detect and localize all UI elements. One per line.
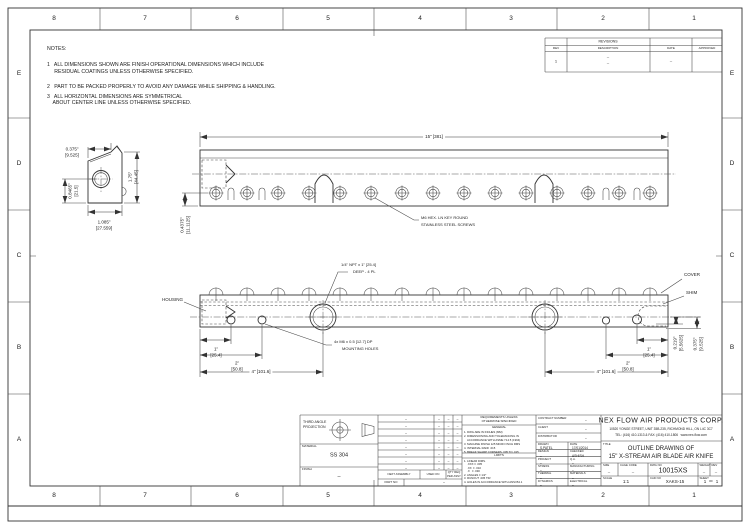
parts-cell-dash: – — [448, 416, 450, 420]
parts-cell-dash: – — [405, 423, 407, 427]
zone-row-label: A — [17, 436, 21, 444]
distributor-value: – — [585, 436, 587, 440]
zone-row-label: E — [17, 70, 21, 78]
sheet-value: 1 — [704, 479, 707, 485]
size-label: SIZE — [603, 464, 609, 468]
zone-row-label: B — [17, 344, 21, 352]
revisions-col-description: DESCRIPTION — [598, 47, 619, 51]
note-line: 2 PART TO BE PACKED PROPERLY TO AVOID AN… — [47, 84, 276, 91]
zone-row-label: B — [730, 344, 734, 352]
weight-value: – — [703, 469, 705, 474]
parts-cell-dash: – — [405, 465, 407, 469]
dim-side-left: 0.8465"[21.5] — [55, 183, 84, 198]
zone-col-label: 5 — [326, 492, 330, 500]
parts-cell-dash: – — [438, 416, 440, 420]
general-item: 5. BREAK SHARP CORNERS .005 TO .015 — [464, 451, 519, 455]
part-no-label: PART NO — [384, 481, 397, 485]
screw-note: M6 HEX. LN KEY ROUND — [421, 215, 468, 220]
zone-col-label: 6 — [235, 15, 239, 23]
rev-value: – — [715, 469, 717, 474]
revision-description-value: – — [607, 60, 609, 65]
cage-code-value: – — [632, 469, 634, 474]
part-no-value: – — [443, 480, 445, 485]
projection-label: PROJECTION — [303, 425, 326, 430]
scale-label: SCALE — [603, 477, 612, 481]
parts-cell-dash: – — [438, 437, 440, 441]
material-value: SS 304 — [330, 452, 348, 459]
dim-side-top: 0.375"[9.525] — [65, 134, 79, 163]
revisions-table-grid — [545, 38, 722, 72]
finish-value: – — [337, 473, 340, 480]
zone-col-label: 3 — [509, 15, 513, 23]
zone-col-label: 4 — [418, 15, 422, 23]
parts-cell-dash: – — [448, 458, 450, 462]
zone-col-label: 7 — [143, 492, 147, 500]
parts-cell-dash: – — [405, 458, 407, 462]
drawing-title: OUTLINE DRAWING OF — [628, 446, 694, 454]
weight-label: WEIGHT — [700, 464, 711, 468]
revision-description-value: – — [607, 54, 609, 59]
limits-title: LIMITS — [494, 454, 504, 458]
npt-note: 1/4" NPT x 1" [25.4] — [341, 262, 376, 267]
dim-2in-left: 2"[50.8] — [231, 348, 242, 377]
zone-col-label: 8 — [52, 492, 56, 500]
dim-screw-offset: 0.4375"[11.1125] — [167, 216, 196, 234]
npt-note: DEEP - 4 PL — [353, 269, 376, 274]
zone-row-label: D — [17, 160, 22, 168]
parts-cell-dash: – — [405, 430, 407, 434]
parts-cell-dash: – — [438, 458, 440, 462]
parts-cell-dash: – — [448, 430, 450, 434]
note-line: 1 ALL DIMENSIONS SHOWN ARE FINISH OPERAT… — [47, 62, 264, 69]
zone-col-label: 1 — [692, 492, 696, 500]
zone-col-label: 1 — [692, 15, 696, 23]
electrical-value: – — [572, 483, 574, 487]
parts-cell-dash: – — [448, 437, 450, 441]
parts-cell-dash: – — [457, 416, 459, 420]
mounting-holes-note: 4x M6 x 0.5 [12.7] DP — [334, 339, 372, 344]
zone-row-label: C — [730, 252, 735, 260]
screw-note: STAINLESS STEEL SCREWS — [421, 222, 475, 227]
revisions-col-approved: APPROVED — [699, 47, 716, 51]
zone-col-label: 3 — [509, 492, 513, 500]
revisions-col-date: DATE — [667, 47, 675, 51]
parts-cell-dash: – — [448, 444, 450, 448]
contract-label: CONTRACT NUMBER — [538, 417, 566, 421]
company-contact: TEL: (416) 410-1313 & FAX: (416) 410-180… — [615, 432, 707, 436]
finish-label: FINISH — [302, 468, 312, 472]
zone-row-label: A — [730, 436, 734, 444]
dim-4in-right: 4" [101.6] — [594, 369, 617, 375]
parts-cell-dash: – — [405, 451, 407, 455]
zone-col-label: 2 — [601, 492, 605, 500]
material-label: MATERIAL — [302, 445, 317, 449]
cad-no-value: XAKS-15 — [666, 479, 685, 485]
parts-cell-dash: – — [457, 437, 459, 441]
zone-col-label: 2 — [601, 15, 605, 23]
zone-row-label: D — [730, 160, 735, 168]
parts-cell-dash: – — [448, 451, 450, 455]
dim-exit-gap: 0.375"[9.525] — [680, 337, 709, 351]
company-address: 10520 YONGE STREET, UNIT 35B-235, RICHMO… — [609, 427, 712, 431]
parts-cell-dash: – — [438, 451, 440, 455]
qty-req-label: PER ASSY — [447, 475, 461, 479]
parts-cell-dash: – — [457, 423, 459, 427]
dim-1in-left: 1"[25.4] — [210, 334, 221, 363]
mounting-holes-note: MOUNTING HOLES — [342, 346, 378, 351]
used-on-label: USED ON — [427, 473, 440, 477]
parts-cell-dash: – — [405, 437, 407, 441]
top-view-geometry — [182, 132, 676, 220]
parts-cell-dash: – — [457, 458, 459, 462]
parts-cell-dash: – — [457, 430, 459, 434]
requirements-header: OTHERWISE SPECIFIED — [482, 420, 517, 424]
revisions-col-rev: REV — [553, 47, 559, 51]
zone-row-label: C — [17, 252, 22, 260]
distributor-label: DISTRIBUTOR — [538, 435, 557, 439]
zone-col-label: 5 — [326, 15, 330, 23]
size-value: – — [608, 469, 610, 474]
parts-cell-dash: – — [448, 423, 450, 427]
cad-no-label: CAD NO — [650, 477, 661, 481]
note-line: RESIDUAL COATINGS UNLESS OTHERWISE SPECI… — [47, 69, 193, 76]
dim-overall-length: 15" [381] — [423, 134, 445, 140]
third-angle-projection-symbol — [329, 419, 374, 441]
client-label: CLIENT — [538, 426, 548, 430]
sheet-total-value: 1 — [716, 479, 719, 485]
parts-cell-dash: – — [438, 423, 440, 427]
client-value: – — [585, 427, 587, 431]
revision-rev-value: 1 — [555, 58, 557, 63]
revisions-title: REVISIONS — [598, 39, 617, 44]
zone-col-label: 6 — [235, 492, 239, 500]
parts-cell-dash: – — [405, 416, 407, 420]
next-assembly-label: NEXT ASSEMBLY — [388, 473, 411, 477]
cage-code-label: CAGE CODE — [620, 464, 637, 468]
cover-label: COVER — [684, 272, 700, 278]
parts-cell-dash: – — [405, 444, 407, 448]
scale-value: 1:1 — [623, 479, 629, 485]
contract-value: – — [585, 418, 587, 422]
parts-cell-dash: – — [457, 444, 459, 448]
limits-item: 4. HOLES IN ACCORDANCE WITH ANSI B4.1 — [464, 481, 522, 485]
projection-label: THIRD ANGLE — [303, 420, 326, 425]
revision-date-value: – — [670, 58, 672, 63]
shim-label: SHIM — [686, 290, 697, 296]
dwg-no-value: 10015XS — [659, 466, 688, 475]
housing-label: HOUSING — [162, 297, 183, 303]
dim-side-bottom: 1.085"[27.559] — [96, 207, 112, 236]
parts-cell-dash: – — [438, 465, 440, 469]
company-name: NEX FLOW AIR PRODUCTS CORP. — [598, 416, 723, 425]
parts-cell-dash: – — [457, 451, 459, 455]
rev-label: REV — [712, 464, 718, 468]
zone-col-label: 8 — [52, 15, 56, 23]
zone-row-label: E — [730, 70, 734, 78]
notes-title: NOTES: — [47, 46, 66, 53]
zone-col-label: 7 — [143, 15, 147, 23]
dim-side-right: 1.75"[44.45] — [115, 170, 144, 184]
zone-col-label: 4 — [418, 492, 422, 500]
dim-2in-right: 2"[50.8] — [622, 348, 633, 377]
dim-1in-right: 1"[25.4] — [643, 334, 654, 363]
dynamics-value: – — [540, 483, 542, 487]
drawing-sheet: 8 7 6 5 4 3 2 1 8 7 6 5 4 3 2 1 E D C B … — [0, 0, 750, 530]
sheet-of-label: OF — [709, 480, 713, 484]
parts-cell-dash: – — [438, 430, 440, 434]
title-label: TITLE — [603, 443, 611, 447]
dim-4in-left: 4" [101.6] — [249, 369, 272, 375]
parts-cell-dash: – — [438, 444, 440, 448]
drawing-title: 15" X-STREAM AIR BLADE AIR KNIFE — [609, 454, 714, 462]
note-line: ABOUT CENTER LINE UNLESS OTHERWISE SPECI… — [47, 100, 191, 107]
